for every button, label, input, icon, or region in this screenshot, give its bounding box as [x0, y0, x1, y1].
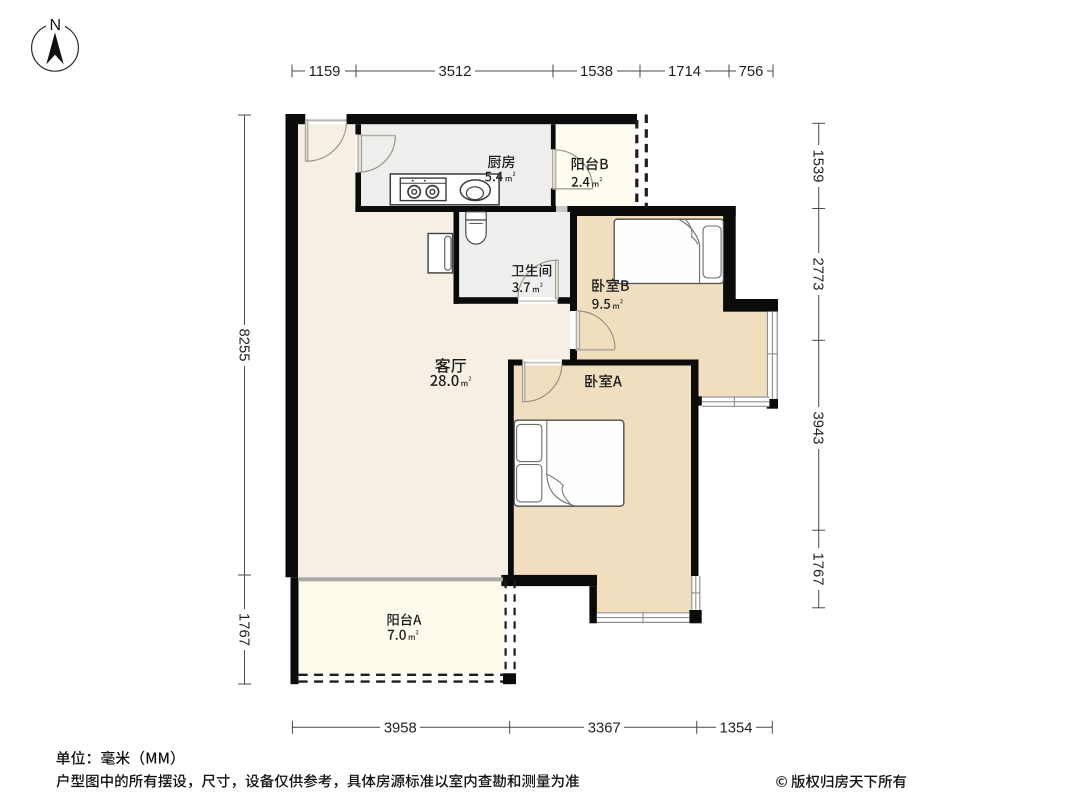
svg-text:1767: 1767 [809, 553, 825, 586]
svg-text:1714: 1714 [668, 64, 701, 80]
svg-text:1767: 1767 [235, 613, 251, 646]
svg-text:3367: 3367 [588, 721, 621, 737]
svg-text:1159: 1159 [309, 64, 341, 80]
svg-text:1538: 1538 [580, 64, 613, 80]
svg-text:3512: 3512 [439, 64, 472, 80]
svg-text:1354: 1354 [720, 721, 753, 737]
svg-text:8255: 8255 [235, 329, 251, 362]
svg-text:1539: 1539 [809, 150, 825, 183]
svg-text:2773: 2773 [809, 258, 825, 291]
svg-text:756: 756 [739, 64, 764, 80]
svg-text:3943: 3943 [809, 412, 825, 445]
svg-text:N: N [50, 17, 62, 34]
svg-text:3958: 3958 [384, 721, 417, 737]
